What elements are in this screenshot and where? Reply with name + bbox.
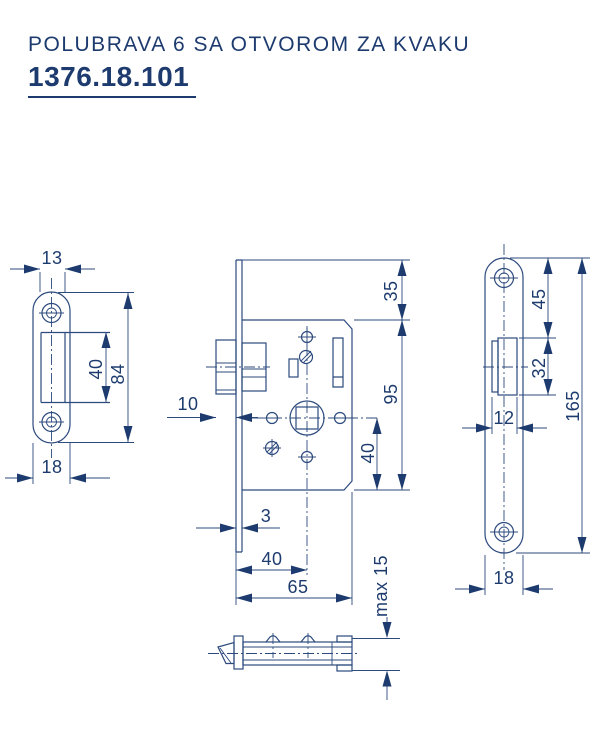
dim-label-body-top-offset: 35 (381, 280, 401, 301)
dim-label-strike-height: 84 (108, 363, 128, 384)
faceplate-edge (236, 260, 242, 552)
dim-label-strike-inner-width: 13 (41, 248, 62, 268)
dim-label-face-hole-width: 12 (493, 408, 514, 428)
dim-label-strike-width: 18 (41, 457, 62, 477)
latch-wedge (218, 643, 234, 664)
dim-label-face-hole-height: 32 (529, 357, 549, 378)
dim-label-body-depth: 65 (287, 577, 308, 597)
dim-label-face-length: 165 (563, 390, 583, 422)
dim-label-latch-protrusion: 10 (177, 394, 198, 414)
flange-top (337, 636, 352, 642)
catalog-page: POLUBRAVA 6 SA OTVOROM ZA KVAKU 1376.18.… (0, 0, 600, 741)
latch-opening (498, 338, 517, 395)
dim-label-face-hole-top: 45 (529, 288, 549, 309)
dim-label-backset: 40 (261, 549, 282, 569)
spring-slot (333, 338, 343, 387)
faceplate-view: 45 32 165 12 18 (455, 244, 590, 595)
dim-label-strike-slot-height: 40 (86, 358, 106, 379)
dim-label-case-thickness: max 15 (371, 555, 391, 617)
rivets (263, 351, 313, 458)
dim-label-body-height: 95 (381, 383, 401, 404)
faceplate-plan (234, 636, 243, 669)
lock-technical-drawing: 13 84 40 18 (0, 0, 600, 741)
dim-label-body-below-axis: 40 (358, 442, 378, 463)
lock-body-view: 10 35 95 40 3 40 65 (167, 260, 410, 605)
stop-slot (289, 359, 298, 377)
dim-label-face-width: 18 (493, 568, 514, 588)
dim-label-plate-thickness: 3 (261, 506, 272, 526)
strike-plate-view: 13 84 40 18 (5, 248, 134, 484)
case-plan (243, 642, 352, 665)
flange-bottom (337, 665, 352, 671)
